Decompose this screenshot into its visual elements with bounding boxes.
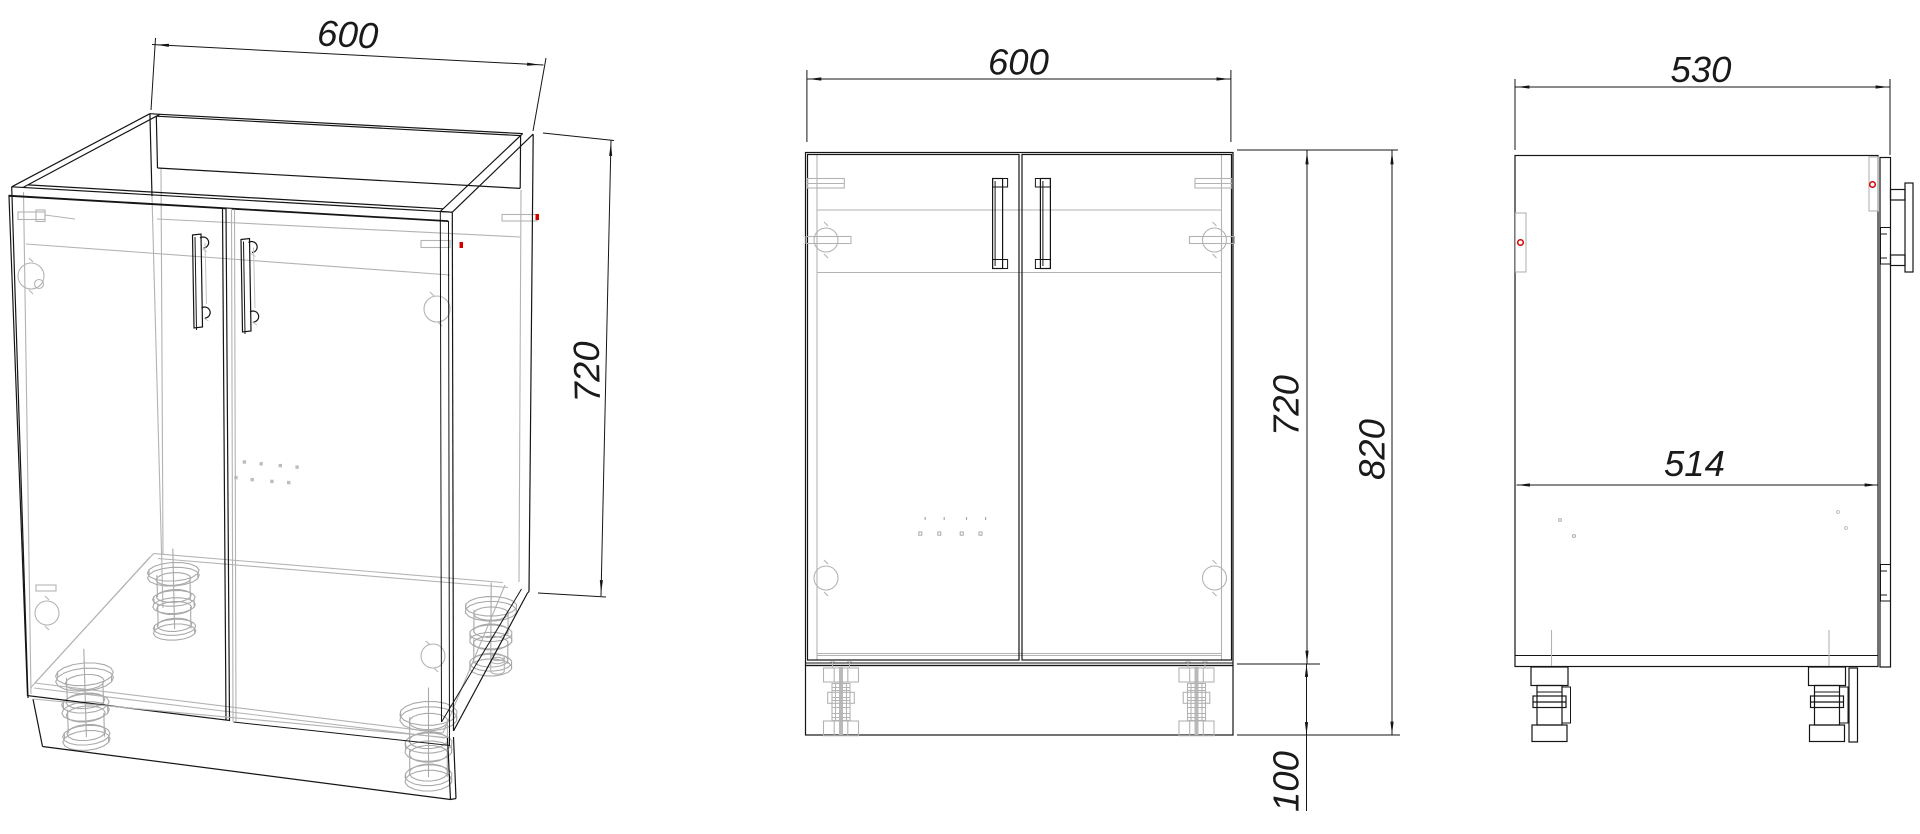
svg-text:720: 720	[566, 341, 608, 403]
svg-text:514: 514	[1664, 443, 1725, 484]
svg-text:100: 100	[1266, 751, 1307, 812]
svg-text:600: 600	[988, 42, 1049, 83]
svg-text:600: 600	[316, 12, 379, 56]
svg-text:820: 820	[1352, 419, 1393, 480]
svg-text:530: 530	[1671, 49, 1732, 90]
svg-text:720: 720	[1266, 375, 1307, 436]
